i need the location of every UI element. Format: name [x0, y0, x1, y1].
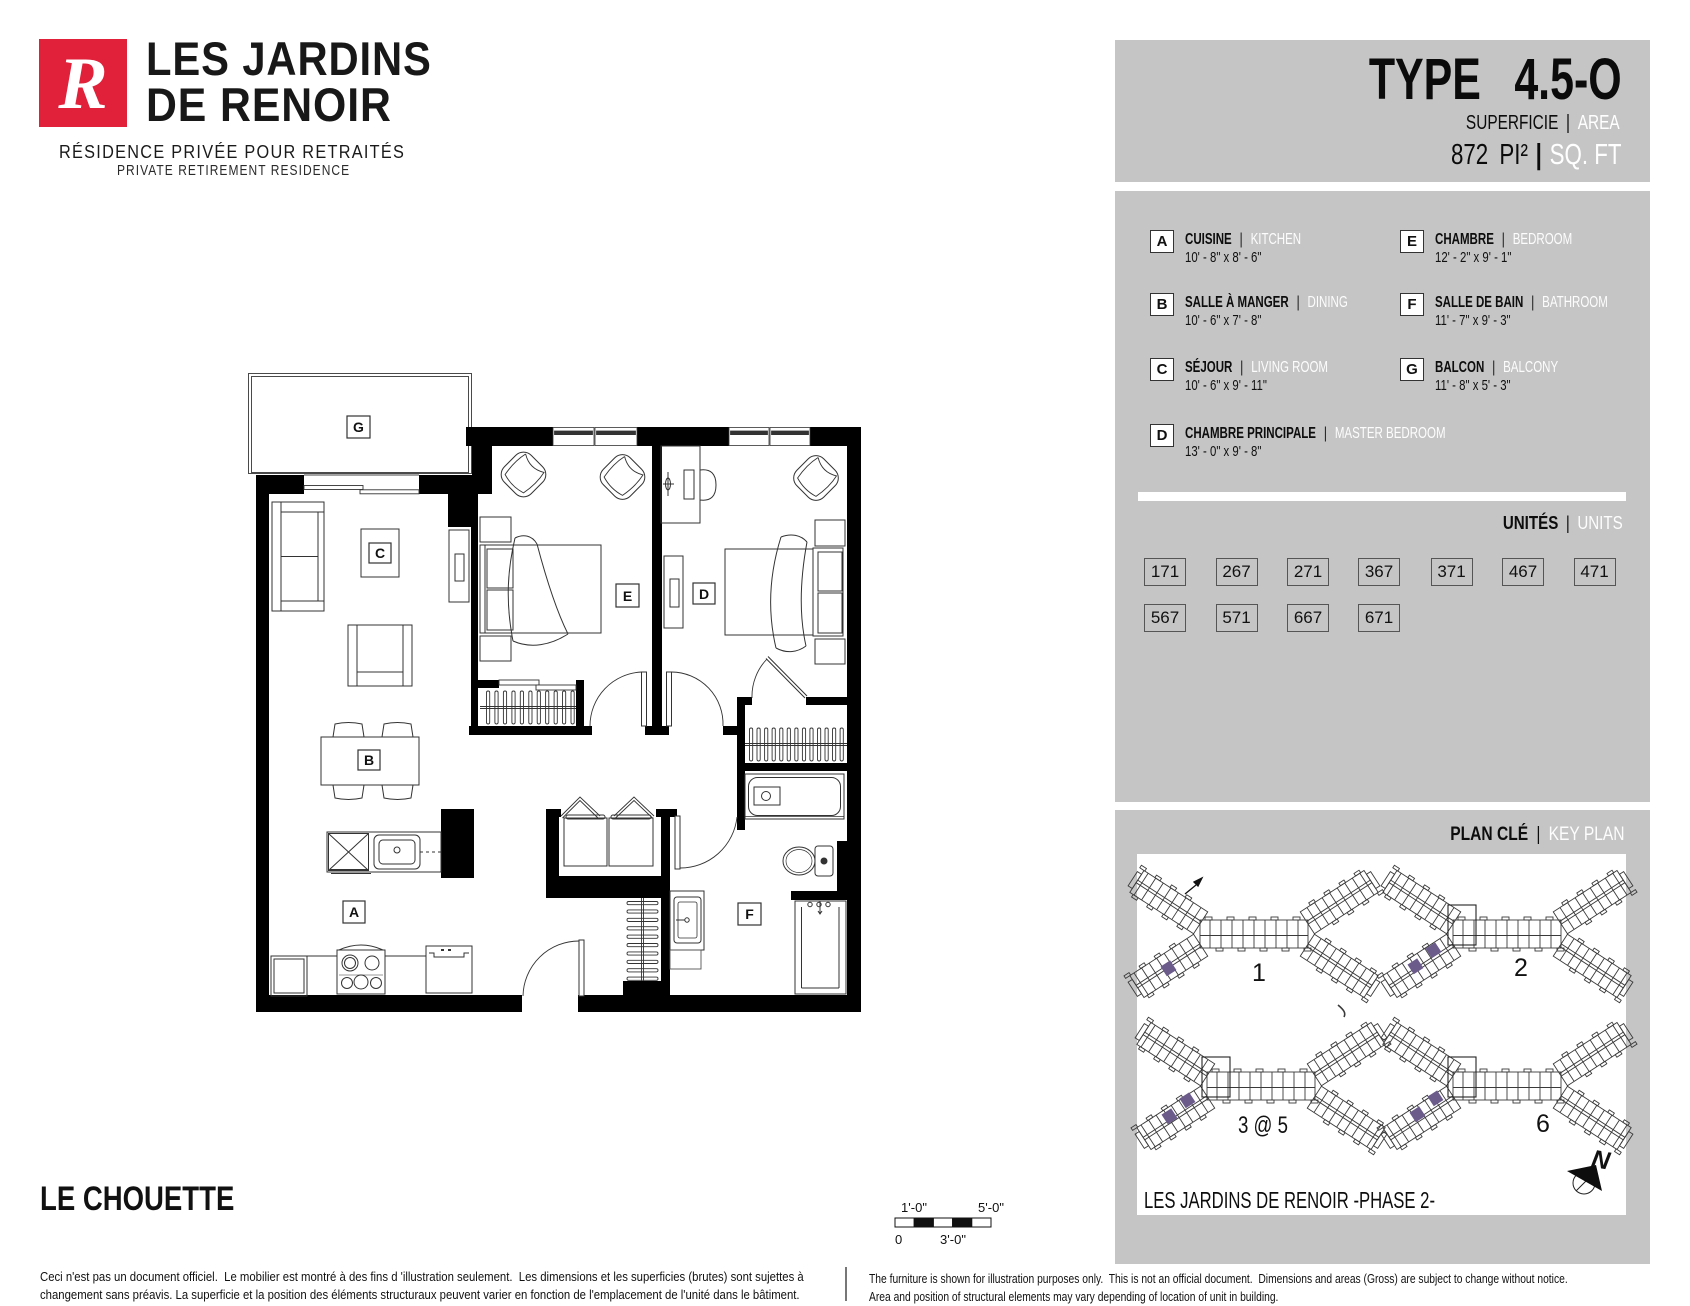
- svg-text:2: 2: [1514, 954, 1528, 982]
- svg-text:6: 6: [1536, 1110, 1550, 1138]
- svg-text:N: N: [1589, 1145, 1613, 1176]
- svg-text:R: R: [57, 43, 107, 125]
- svg-text:3 @ 5: 3 @ 5: [1238, 1112, 1288, 1139]
- svg-text:G: G: [353, 419, 364, 435]
- svg-text:F: F: [745, 906, 754, 922]
- svg-text:C: C: [375, 545, 385, 561]
- svg-text:E: E: [623, 588, 632, 604]
- svg-text:A: A: [349, 904, 359, 920]
- svg-text:B: B: [364, 752, 374, 768]
- svg-text:3'-0": 3'-0": [940, 1232, 966, 1247]
- svg-text:5'-0": 5'-0": [978, 1200, 1004, 1215]
- svg-text:D: D: [699, 586, 709, 602]
- svg-text:1'-0": 1'-0": [901, 1200, 927, 1215]
- svg-text:1: 1: [1252, 959, 1266, 987]
- svg-text:LES JARDINS DE RENOIR -PHASE 2: LES JARDINS DE RENOIR -PHASE 2-: [1144, 1187, 1435, 1213]
- svg-text:0: 0: [895, 1232, 902, 1247]
